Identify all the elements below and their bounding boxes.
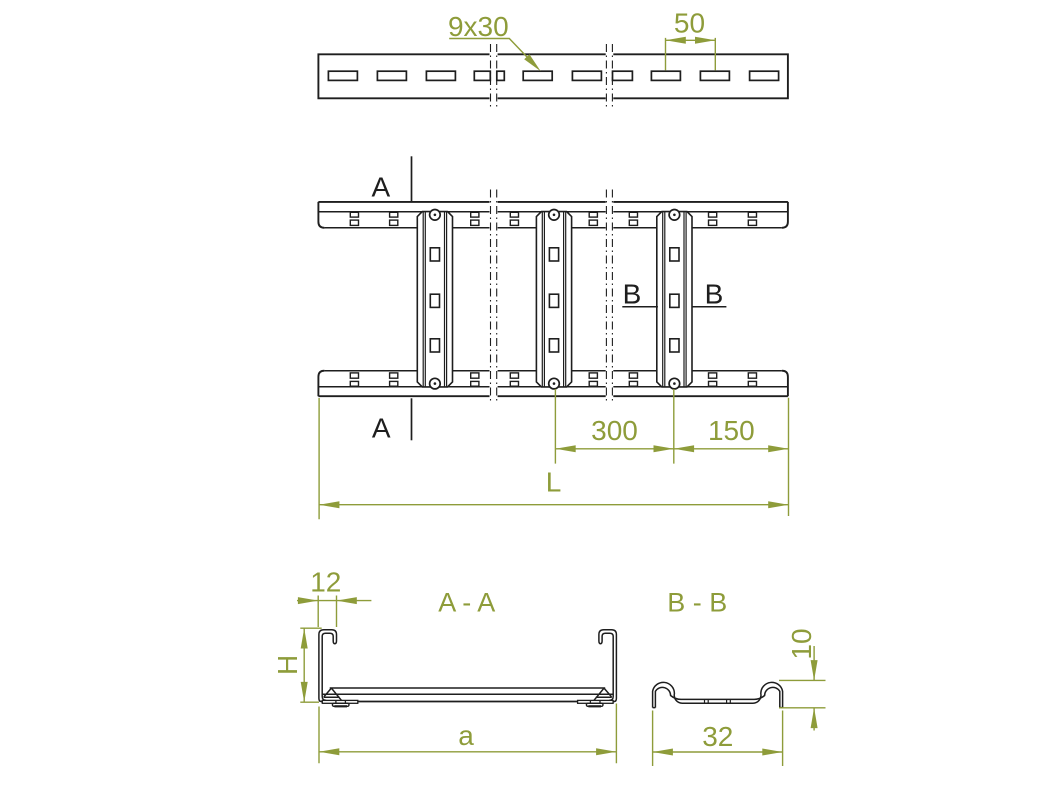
svg-text:50: 50 bbox=[674, 8, 705, 39]
svg-text:A - A: A - A bbox=[438, 587, 495, 617]
svg-text:A: A bbox=[372, 413, 391, 444]
svg-text:B: B bbox=[623, 279, 642, 310]
svg-text:L: L bbox=[546, 466, 562, 497]
svg-text:B: B bbox=[705, 279, 724, 310]
svg-text:32: 32 bbox=[702, 721, 733, 752]
svg-text:9x30: 9x30 bbox=[448, 11, 509, 42]
svg-text:150: 150 bbox=[708, 415, 755, 446]
svg-text:A: A bbox=[371, 171, 390, 202]
svg-text:a: a bbox=[458, 720, 474, 751]
svg-text:10: 10 bbox=[786, 628, 817, 659]
svg-text:12: 12 bbox=[310, 567, 341, 598]
svg-text:B - B: B - B bbox=[667, 587, 727, 617]
svg-text:300: 300 bbox=[591, 415, 638, 446]
svg-text:H: H bbox=[272, 655, 303, 675]
